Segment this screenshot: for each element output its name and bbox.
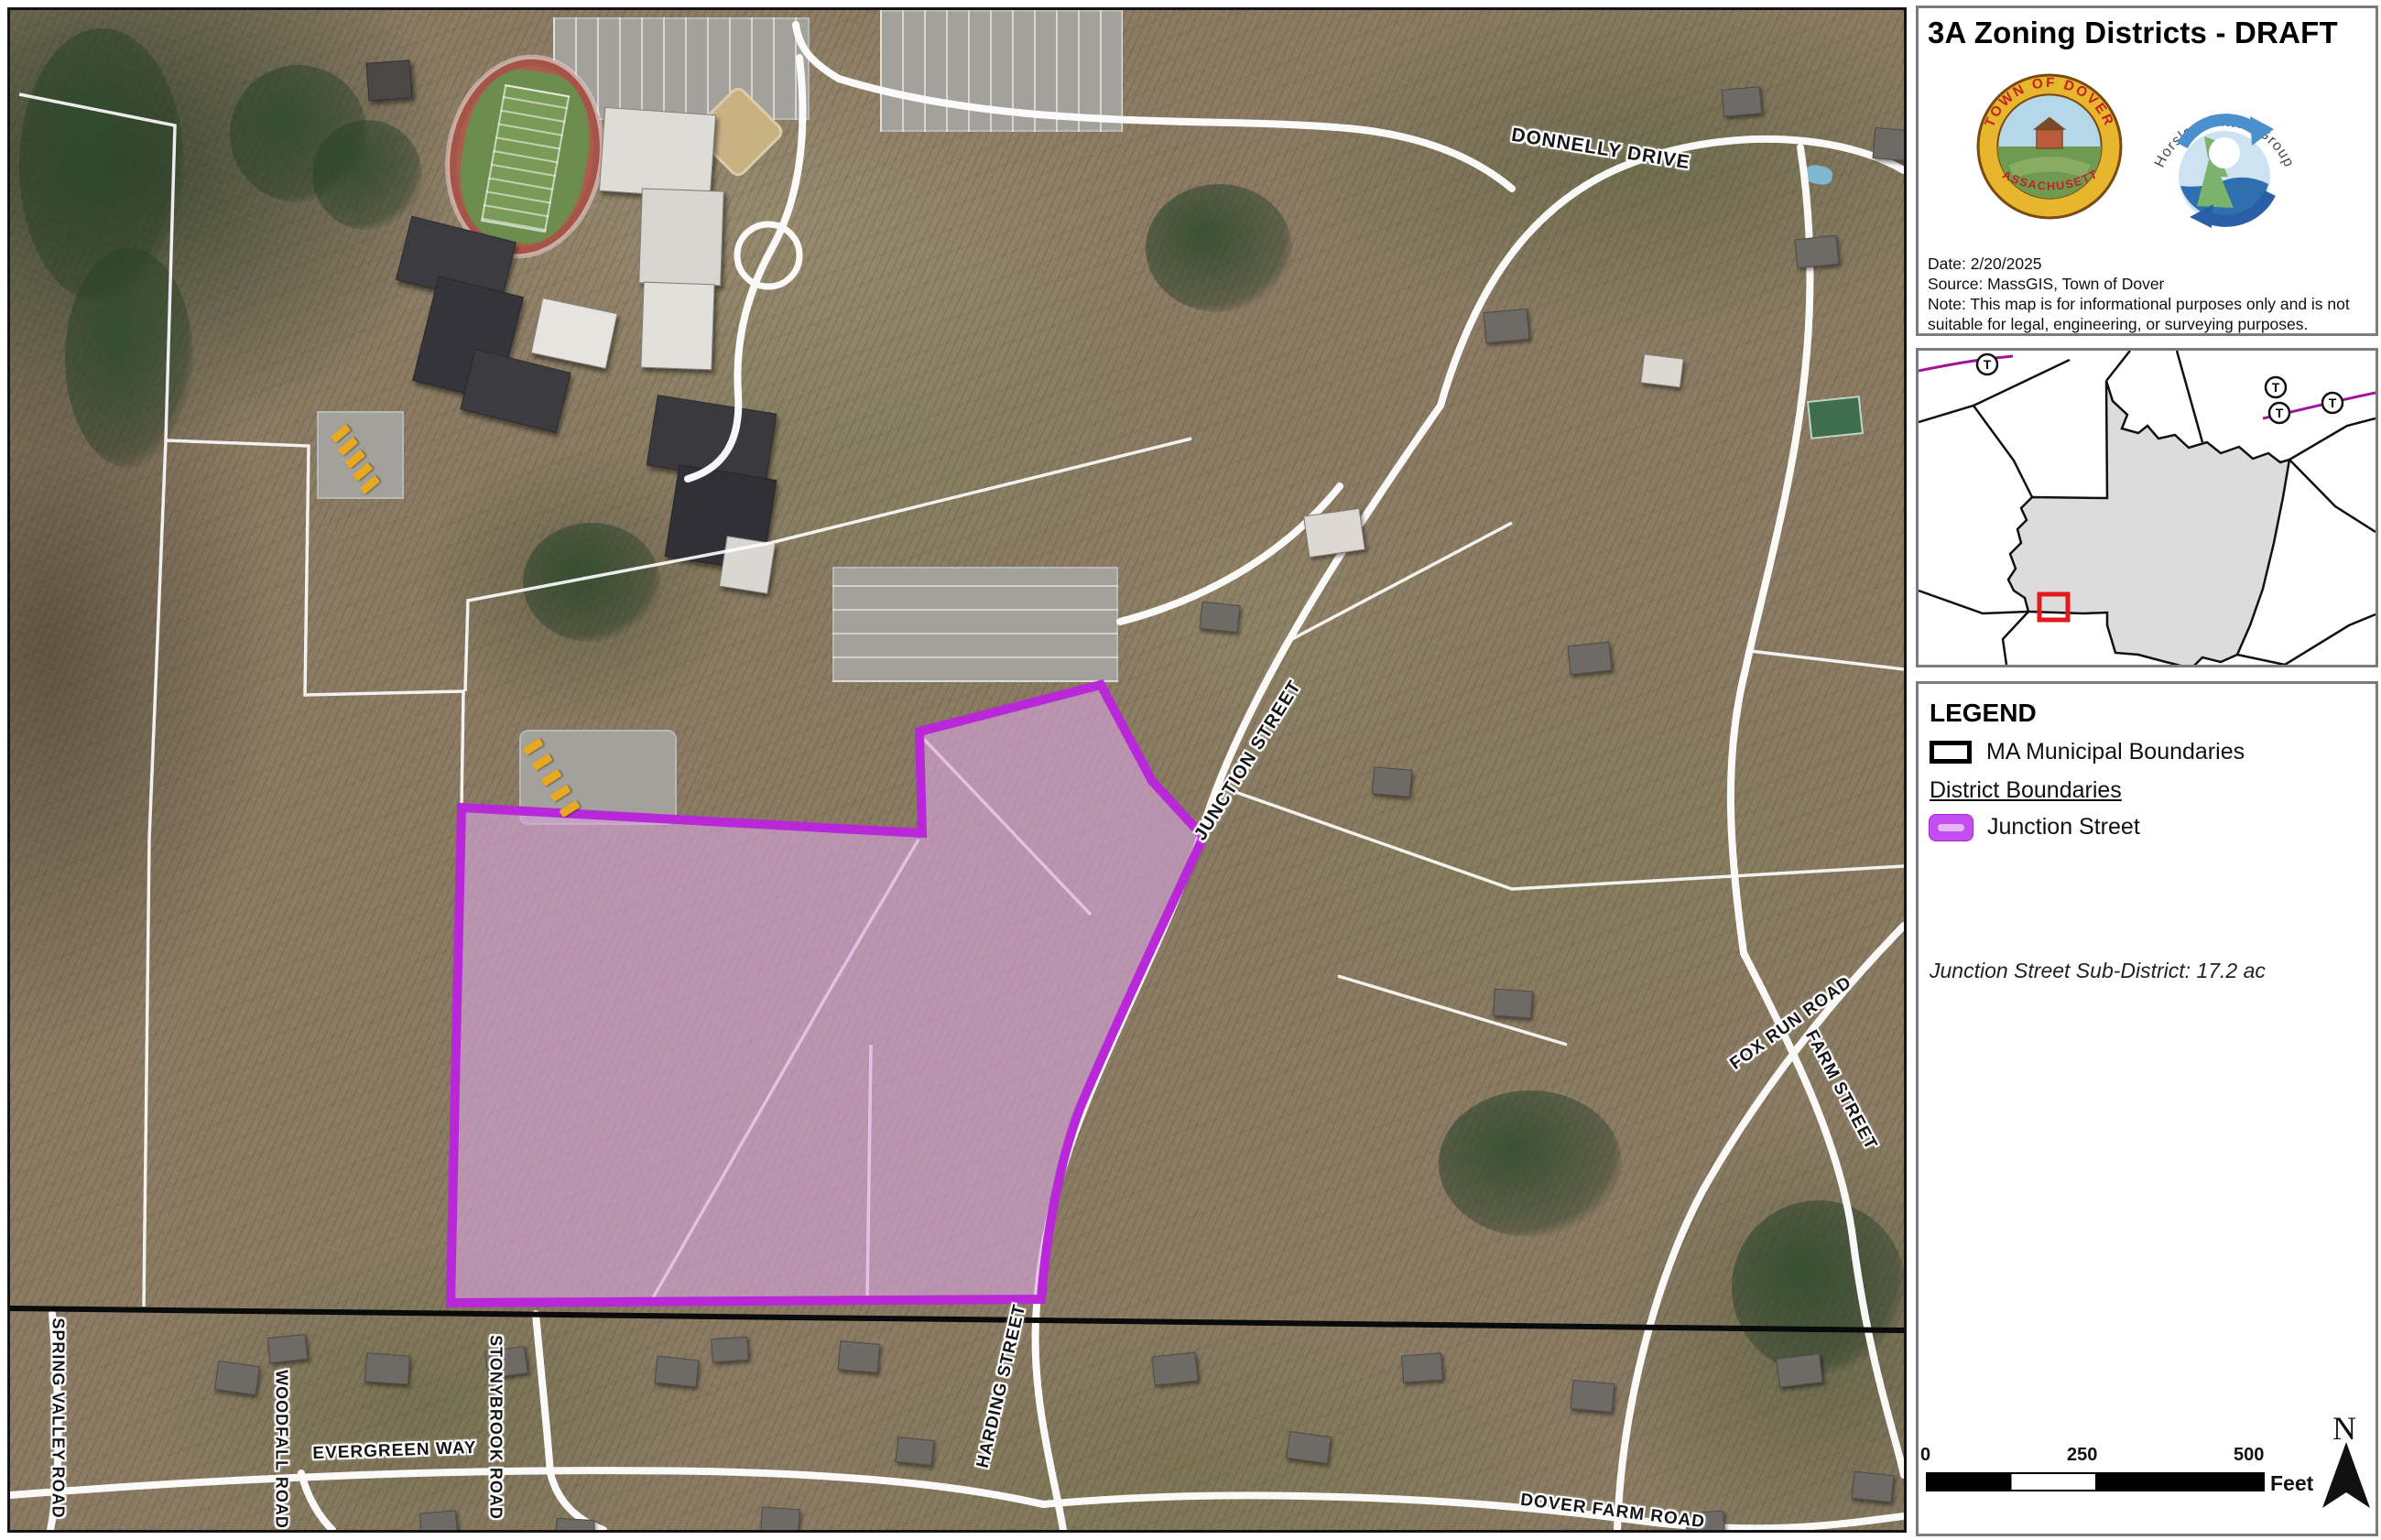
road-woodfall	[301, 1473, 332, 1530]
parcel-line	[19, 94, 463, 808]
main-map: DONNELLY DRIVEJUNCTION STREETFOX RUN ROA…	[7, 7, 1907, 1533]
municipal-boundary-line	[10, 1308, 1904, 1330]
parcel-line	[1750, 651, 1904, 669]
campus-drive	[688, 58, 802, 479]
road-spring-valley	[50, 1314, 59, 1530]
parcel-line	[144, 440, 166, 1307]
house	[760, 1507, 800, 1533]
house	[364, 1352, 410, 1384]
house	[1151, 1352, 1198, 1386]
scalebar	[1926, 1472, 2265, 1491]
town-of-dover-seal-logo: TOWN OF DOVER MASSACHUSETTS	[1975, 72, 2124, 221]
north-arrow-icon	[2316, 1442, 2376, 1513]
house	[1873, 127, 1907, 162]
house	[838, 1340, 881, 1373]
road-dover-farm	[1043, 1495, 1904, 1528]
page-title: 3A Zoning Districts - DRAFT	[1928, 16, 2338, 50]
scalebar-zero: 0	[1920, 1445, 1930, 1466]
scalebar-max: 500	[2234, 1445, 2264, 1466]
house	[1567, 642, 1612, 676]
house	[1303, 508, 1365, 558]
title-panel: 3A Zoning Districts - DRAFT TOWN OF DOVE…	[1916, 5, 2378, 336]
legend-municipal-label: MA Municipal Boundaries	[1986, 739, 2245, 765]
house	[1776, 1353, 1823, 1388]
inset-map-svg: T T T T	[1919, 351, 2376, 665]
municipal-boundary-swatch-icon	[1930, 741, 1972, 764]
house	[711, 1337, 749, 1363]
scalebar-unit: Feet	[2270, 1471, 2313, 1496]
house	[267, 1334, 309, 1363]
road-donnelly-west	[839, 79, 1512, 189]
legend-junction-label: Junction Street	[1987, 814, 2140, 840]
house	[1372, 766, 1412, 797]
credit-note-line1: Note: This map is for informational purp…	[1928, 294, 2350, 314]
credit-date: Date: 2/20/2025	[1928, 254, 2350, 274]
house	[1640, 353, 1684, 387]
map-linework	[10, 10, 1904, 1530]
legend-heading: LEGEND	[1930, 699, 2037, 728]
map-document: DONNELLY DRIVEJUNCTION STREETFOX RUN ROA…	[0, 0, 2381, 1540]
house	[1794, 235, 1839, 269]
horsley-witten-group-logo: Horsley Witten Group	[2144, 85, 2305, 241]
parcel-line	[1338, 976, 1567, 1045]
credit-source: Source: MassGIS, Town of Dover	[1928, 274, 2350, 294]
road-fox-run	[1617, 926, 1904, 1530]
legend-item-junction-street: Junction Street	[1930, 814, 2140, 840]
house	[1493, 989, 1533, 1019]
credit-note-line2: suitable for legal, engineering, or surv…	[1928, 314, 2350, 334]
t-station-label: T	[1984, 357, 1992, 372]
house	[896, 1437, 935, 1466]
map-credits: Date: 2/20/2025 Source: MassGIS, Town of…	[1928, 254, 2350, 334]
house	[1571, 1380, 1615, 1413]
scalebar-mid: 250	[2067, 1445, 2097, 1466]
house	[214, 1361, 260, 1395]
house	[1484, 309, 1530, 343]
house	[655, 1356, 700, 1388]
house	[1200, 602, 1241, 633]
house	[419, 1510, 458, 1533]
house	[484, 1346, 528, 1379]
road-stonybrook	[536, 1314, 603, 1530]
house	[1722, 86, 1762, 117]
legend-district-heading: District Boundaries	[1930, 777, 2122, 804]
junction-street-district-polygon	[451, 685, 1203, 1303]
t-station-label: T	[2272, 380, 2280, 395]
house	[1286, 1431, 1332, 1464]
house	[1685, 1511, 1725, 1533]
district-swatch-icon	[1930, 815, 1973, 840]
campus-exit-drive	[1120, 486, 1340, 622]
legend-panel: LEGEND MA Municipal Boundaries District …	[1916, 681, 2378, 1536]
road-farm-street	[1744, 953, 1904, 1475]
t-station-label: T	[2329, 396, 2337, 410]
house	[555, 1518, 594, 1533]
house	[1852, 1471, 1895, 1502]
house	[1401, 1353, 1443, 1383]
district-area-note: Junction Street Sub-District: 17.2 ac	[1930, 959, 2266, 983]
road-evergreen-way	[10, 1470, 1043, 1504]
inset-locator-map: T T T T	[1916, 348, 2378, 667]
legend-item-municipal: MA Municipal Boundaries	[1930, 739, 2245, 765]
parcel-line	[465, 439, 1191, 691]
parcel-line	[1230, 790, 1904, 889]
t-station-label: T	[2276, 406, 2284, 420]
